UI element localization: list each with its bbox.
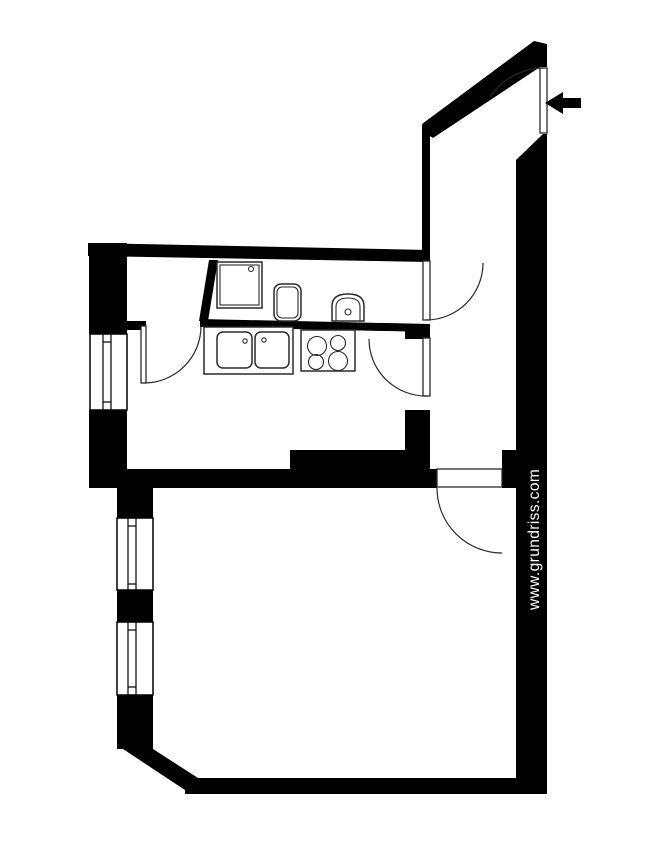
hall-mid-stub	[405, 325, 430, 339]
right-wall	[516, 134, 547, 793]
bottom-wall	[185, 778, 547, 794]
floorplan-page: www.grundriss.com	[0, 0, 650, 856]
kitchen-door-leaf	[423, 338, 430, 396]
room-door-arc	[437, 488, 502, 553]
kitchen-window-frame	[90, 334, 127, 410]
chimney-block	[290, 450, 430, 470]
sink-left	[217, 332, 252, 368]
entrance-door-leaf	[540, 68, 547, 133]
pantry-door-arc	[144, 326, 201, 383]
room-window-2-frame	[117, 622, 153, 695]
entrance-arrow-head	[545, 92, 563, 114]
floorplan-shapes	[88, 41, 581, 794]
top-wall	[88, 243, 430, 262]
left-wall-upper	[89, 243, 127, 334]
floorplan-canvas: www.grundriss.com	[0, 0, 650, 856]
room-left-wall	[117, 469, 153, 749]
shower-tray-outer	[217, 262, 262, 308]
bath-door-leaf	[423, 261, 430, 320]
pantry-bath-divider	[199, 260, 218, 321]
room-door-right-stub	[502, 450, 516, 488]
sink-right	[255, 332, 289, 368]
hall-left-wall	[422, 125, 430, 252]
bath-door-arc	[426, 263, 483, 320]
entrance-arrow-shaft	[563, 98, 581, 108]
room-door-leaf	[437, 469, 502, 487]
pantry-door-leaf	[141, 326, 146, 383]
kitchen-door-arc	[369, 339, 426, 396]
room-top-wall	[117, 469, 437, 488]
room-window-1-frame	[117, 518, 153, 590]
watermark-text: www.grundriss.com	[526, 469, 543, 611]
diagonal-entrance-wall	[422, 41, 547, 138]
